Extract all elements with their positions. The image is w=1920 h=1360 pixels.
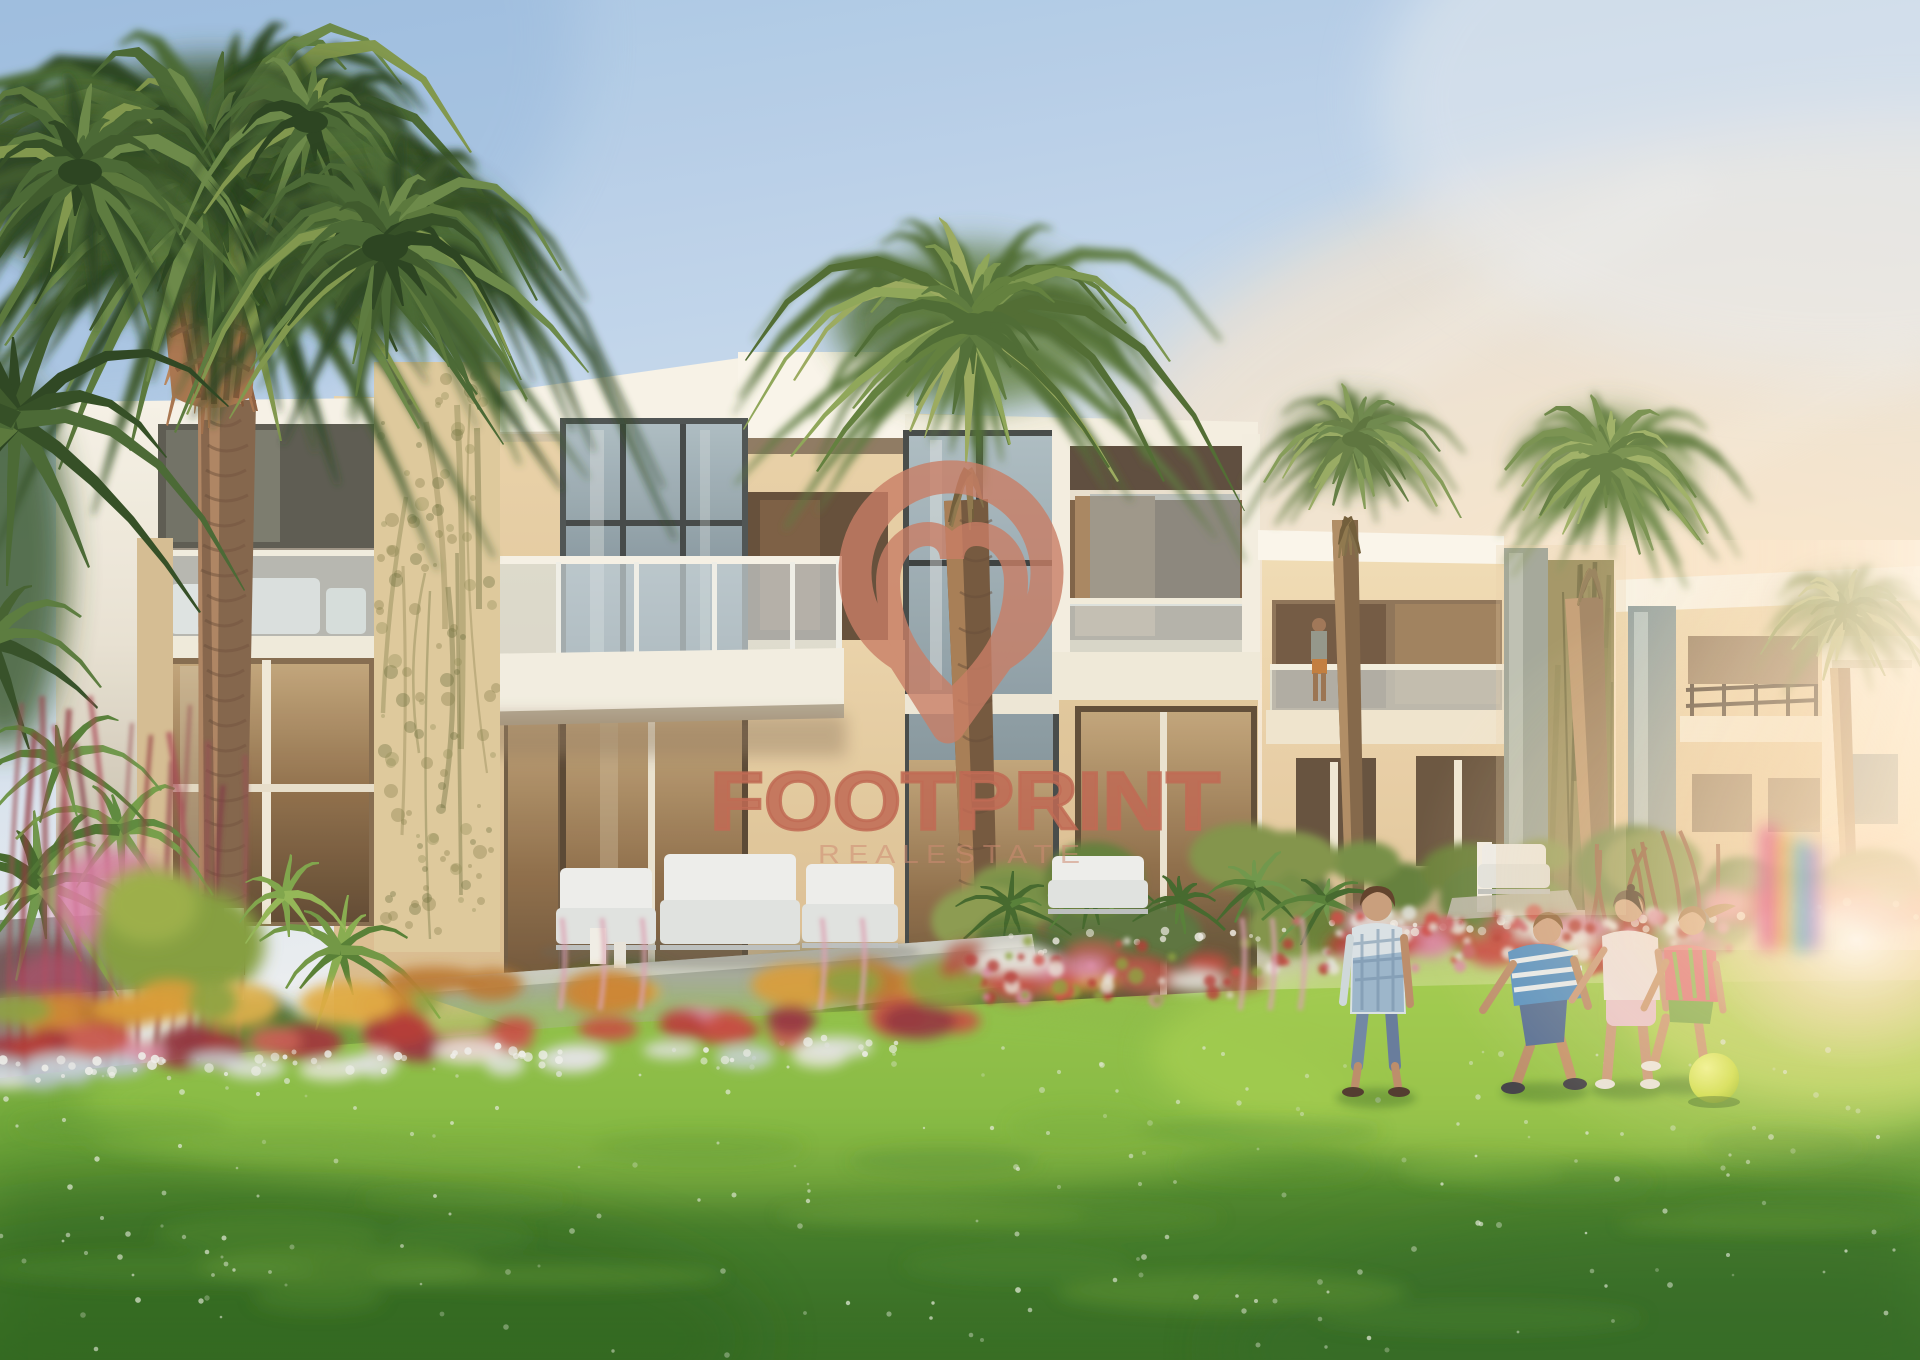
svg-text:R E A L E S T A T E: R E A L E S T A T E: [818, 839, 1080, 869]
svg-text:FOOTPRINT: FOOTPRINT: [710, 756, 1220, 847]
